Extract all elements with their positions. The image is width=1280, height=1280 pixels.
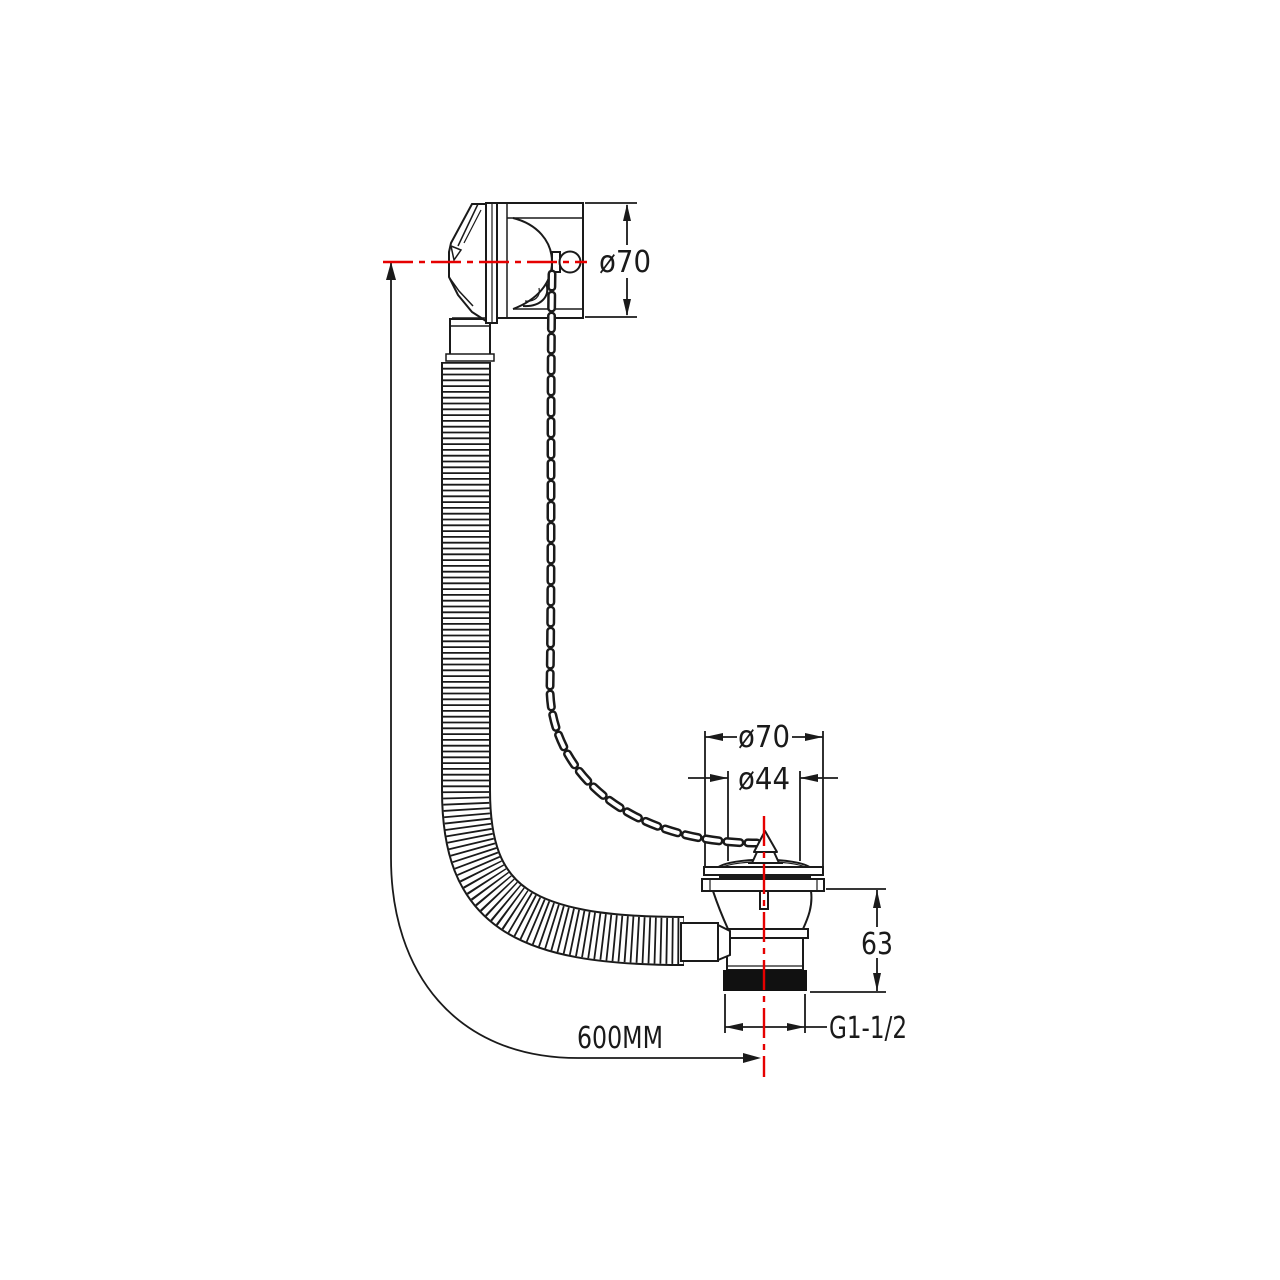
waste-flange-diameter-label: ø70 bbox=[738, 720, 790, 755]
arrowhead-right bbox=[743, 1053, 761, 1063]
thread-size-label: G1-1/2 bbox=[829, 1011, 907, 1046]
top-hose-connector bbox=[446, 319, 494, 361]
dimension-overflow-diameter: ø70 bbox=[585, 203, 652, 317]
hose-length-label: 600MM bbox=[577, 1021, 663, 1056]
waste-plug-diameter-label: ø44 bbox=[738, 762, 790, 797]
arrowhead-up bbox=[386, 262, 396, 280]
drawing-canvas: 600MM ø70 ø70 ø44 63 bbox=[0, 0, 1280, 1280]
waste-height-label: 63 bbox=[861, 927, 893, 962]
plug-chain bbox=[550, 274, 757, 843]
overflow-assembly bbox=[446, 203, 583, 361]
hose-end-connector bbox=[681, 923, 730, 961]
waste-body bbox=[723, 929, 808, 991]
arrowhead-up bbox=[623, 204, 631, 221]
plug-neck bbox=[752, 852, 779, 863]
body-collar bbox=[723, 929, 808, 938]
arrowhead-left bbox=[705, 733, 723, 741]
arrowhead-down bbox=[623, 299, 631, 316]
technical-drawing: 600MM ø70 ø70 ø44 63 bbox=[0, 0, 1280, 1280]
dimension-thread-size: G1-1/2 bbox=[725, 994, 907, 1046]
overflow-diameter-label: ø70 bbox=[599, 245, 651, 280]
arrowhead-right bbox=[805, 733, 823, 741]
arrowhead-left bbox=[725, 1023, 743, 1031]
dimension-waste-height: 63 bbox=[810, 889, 896, 992]
arrowhead-left bbox=[800, 774, 818, 782]
arrowhead-up bbox=[873, 890, 881, 908]
flexible-hose bbox=[466, 362, 684, 941]
arrowhead-down bbox=[873, 973, 881, 991]
arrowhead-right bbox=[710, 774, 728, 782]
arrowhead-right bbox=[787, 1023, 805, 1031]
